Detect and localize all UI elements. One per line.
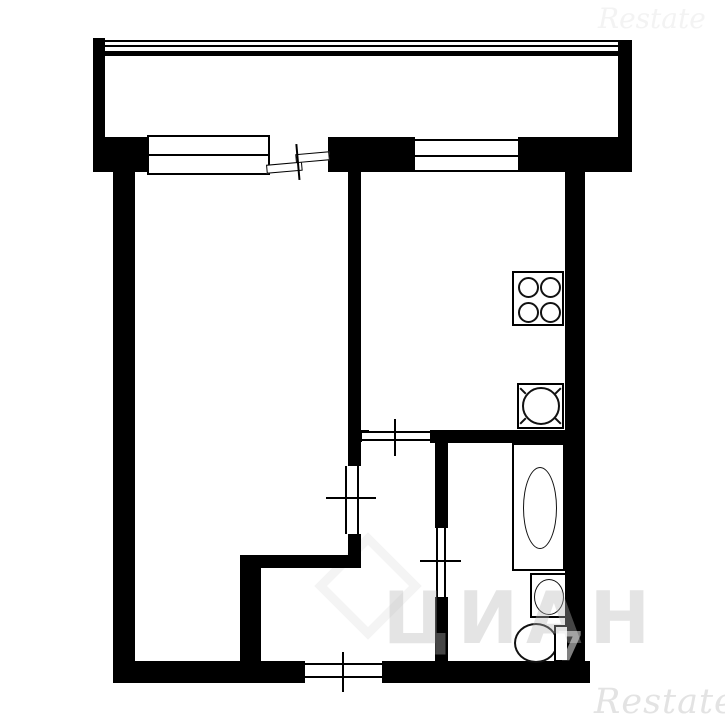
balcony-door [265, 147, 331, 178]
bathtub-icon [512, 443, 565, 571]
burner-icon [518, 277, 539, 298]
sink-corner-mark [519, 417, 526, 424]
balcony-railing-line [103, 51, 622, 56]
burner-icon [518, 302, 539, 323]
living-kitchen-wall [348, 172, 361, 466]
balcony-railing-line [103, 40, 619, 42]
door-tick-mark [342, 652, 344, 692]
balcony-left-wall [93, 38, 105, 140]
door-tick-mark [420, 560, 461, 562]
top-wall-segment [93, 137, 148, 172]
door-tick-mark [394, 419, 396, 456]
restate-watermark: Restate [594, 682, 725, 722]
burner-icon [540, 277, 561, 298]
door-jamb [345, 466, 347, 534]
sink-corner-mark [554, 387, 561, 394]
door-jamb [362, 431, 430, 433]
window-mullion [414, 155, 519, 157]
burner-icon [540, 302, 561, 323]
sink-corner-mark [519, 387, 526, 394]
door-tick-mark [326, 497, 376, 499]
floor-plan: ЦИАН 7 Restate Restate [0, 0, 725, 725]
bathroom-top-wall [430, 430, 565, 443]
bottom-wall-left [113, 661, 305, 683]
window-mullion [148, 154, 269, 156]
cian-watermark: ЦИАН [383, 576, 658, 660]
kitchen-window [413, 139, 520, 172]
sink-corner-mark [554, 417, 561, 424]
left-exterior-wall [113, 170, 135, 683]
restate-watermark-top: Restate [598, 2, 706, 35]
balcony-railing-line [103, 45, 619, 47]
balcony-door-leaf [295, 151, 330, 163]
entry-step-wall-vertical [240, 555, 261, 683]
kitchen-sink-icon [517, 383, 564, 429]
door-jamb [362, 439, 430, 441]
door-jamb [357, 466, 359, 534]
bathtub-basin [523, 467, 557, 549]
living-room-window [147, 135, 270, 175]
balcony-right-wall [618, 40, 632, 140]
top-wall-segment [328, 137, 415, 172]
bathroom-left-wall-upper [435, 437, 448, 528]
top-wall-segment [518, 137, 632, 172]
watermark-digit: 7 [556, 624, 584, 670]
stove-4-burner-icon [512, 271, 564, 326]
